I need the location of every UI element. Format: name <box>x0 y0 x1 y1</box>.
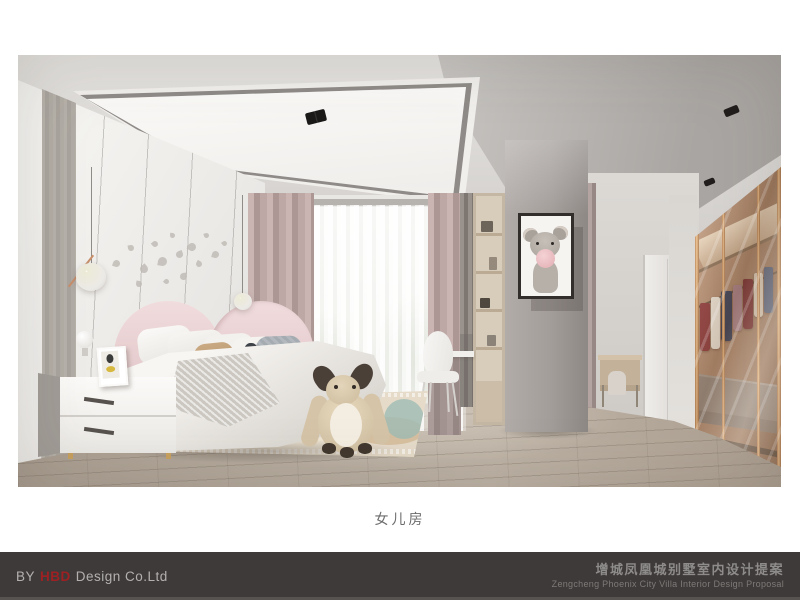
koala-bubblegum <box>536 249 555 268</box>
proposal-title-block: 增城凤凰城别墅室内设计提案 Zengcheng Phoenix City Vil… <box>552 562 784 590</box>
vanity-leg <box>602 385 604 407</box>
shelf-unit <box>473 193 505 425</box>
shelf-board <box>476 347 502 350</box>
company-name: Design Co.Ltd <box>76 569 168 584</box>
plush-paw <box>358 443 372 454</box>
proposal-title-en: Zengcheng Phoenix City Villa Interior De… <box>552 579 784 590</box>
plush-eye <box>334 385 338 389</box>
nightstand-foot <box>68 453 73 459</box>
plush-eye <box>352 385 356 389</box>
plush-toy <box>300 365 392 461</box>
koala-artwork <box>518 213 574 299</box>
nightstand-side <box>38 371 60 457</box>
nightstand <box>60 377 176 453</box>
plush-belly <box>330 403 362 447</box>
shelf-object <box>480 298 490 308</box>
pendant-lamp <box>234 293 252 310</box>
vanity-leg <box>636 385 638 407</box>
interior-render-photo <box>18 55 781 487</box>
plush-head <box>326 375 360 405</box>
shelf-object <box>481 221 493 232</box>
plush-paw <box>340 447 354 458</box>
pendant-cord <box>91 167 92 267</box>
brand-logo: HBD <box>40 569 71 584</box>
shelf-object <box>489 257 497 270</box>
shelf-cabinet <box>476 381 502 422</box>
shelf-board <box>476 271 502 274</box>
table-lamp-base <box>82 348 88 356</box>
vanity-stool <box>608 371 626 395</box>
shelf-board <box>476 309 502 312</box>
shelf-board <box>476 233 502 236</box>
plush-paw <box>322 443 336 454</box>
room-caption: 女儿房 <box>0 509 800 529</box>
pendant-cord <box>242 195 243 295</box>
proposal-slide: 女儿房 BYHBDDesign Co.Ltd 增城凤凰城别墅室内设计提案 Zen… <box>0 0 800 600</box>
shelf-object <box>487 335 496 346</box>
table-lamp <box>76 331 93 348</box>
picture-frame <box>97 346 129 387</box>
footer-bar: BYHBDDesign Co.Ltd 增城凤凰城别墅室内设计提案 Zengche… <box>0 552 800 600</box>
nightstand-foot <box>166 453 171 459</box>
pendant-lamp <box>76 263 106 291</box>
koala-eye <box>551 242 554 245</box>
company-credit: BYHBDDesign Co.Ltd <box>16 569 168 584</box>
by-label: BY <box>16 569 35 584</box>
koala-eye <box>536 242 539 245</box>
proposal-title-cn: 增城凤凰城别墅室内设计提案 <box>552 562 784 578</box>
